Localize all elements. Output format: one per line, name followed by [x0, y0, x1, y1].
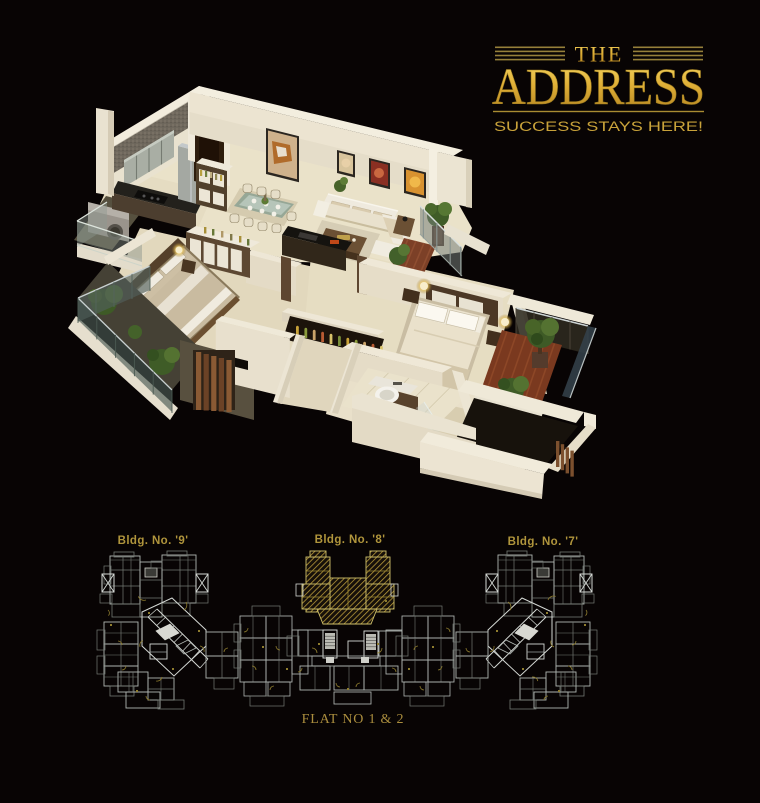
svg-text:FLAT NO 1 & 2: FLAT NO 1 & 2	[302, 712, 405, 727]
svg-text:SUCCESS STAYS HERE!: SUCCESS STAYS HERE!	[494, 119, 703, 134]
svg-text:Bldg. No. '9': Bldg. No. '9'	[118, 535, 189, 547]
svg-text:Bldg. No. '7': Bldg. No. '7'	[508, 536, 579, 548]
svg-text:ADDRESS: ADDRESS	[492, 59, 705, 116]
svg-text:Bldg. No. '8': Bldg. No. '8'	[315, 534, 386, 546]
